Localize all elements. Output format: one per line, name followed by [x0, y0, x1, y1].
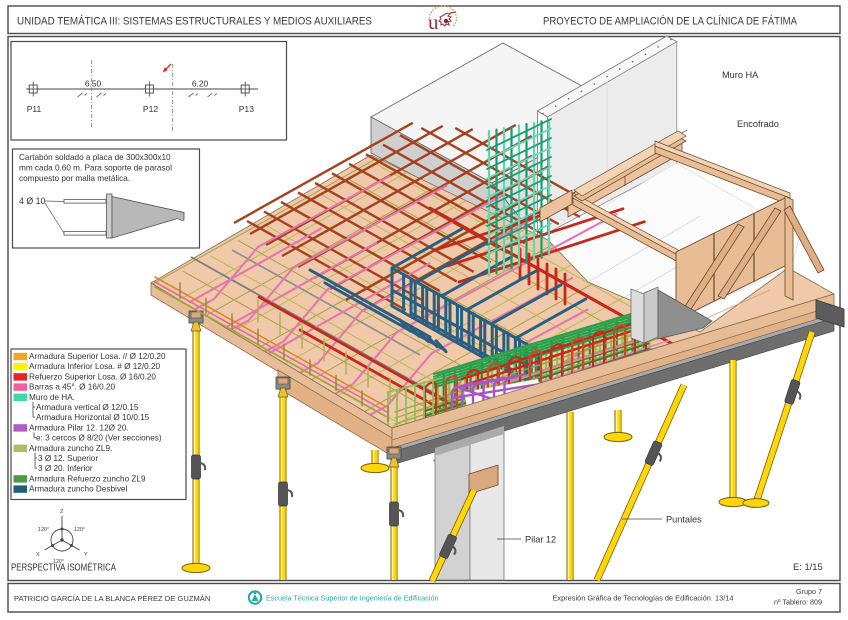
svg-text:120°: 120° — [38, 527, 49, 533]
svg-text:Armadura Inferior Losa. # Ø 1: Armadura Inferior Losa. # Ø 12/0.20 — [29, 362, 161, 371]
svg-text:3 Ø 20. Inferior: 3 Ø 20. Inferior — [38, 464, 93, 473]
svg-text:Puntales: Puntales — [666, 515, 702, 525]
svg-text:PROYECTO DE AMPLIACIÓN DE LA C: PROYECTO DE AMPLIACIÓN DE LA CLÍNICA DE … — [543, 15, 797, 28]
svg-text:Barras a 45°. Ø 16/0.20: Barras a 45°. Ø 16/0.20 — [29, 383, 116, 392]
svg-text:Armadura zuncho ZL9.: Armadura zuncho ZL9. — [29, 444, 112, 453]
svg-text:Cartabón soldado a placa de 30: Cartabón soldado a placa de 300x300x10 — [19, 153, 171, 162]
svg-text:u: u — [428, 10, 439, 34]
svg-text:Refuerzo Superior Losa. Ø 16/0: Refuerzo Superior Losa. Ø 16/0.20 — [29, 372, 156, 381]
svg-text:120°: 120° — [74, 527, 85, 533]
svg-text:Armadura Pilar 12. 12Ø 20.: Armadura Pilar 12. 12Ø 20. — [29, 423, 129, 432]
svg-text:nº Tablero: 809: nº Tablero: 809 — [774, 598, 822, 607]
svg-text:e: 3 cercos Ø 8/20 (Ver secci: e: 3 cercos Ø 8/20 (Ver secciones) — [36, 434, 162, 443]
svg-text:6.50: 6.50 — [85, 79, 102, 89]
svg-text:mm cada 0.60 m. Para soporte d: mm cada 0.60 m. Para soporte de parasol — [19, 164, 172, 173]
svg-text:Armadura Horizontal Ø 10/0.15: Armadura Horizontal Ø 10/0.15 — [36, 413, 150, 422]
svg-text:PATRICIO GARCÍA DE LA BLANCA P: PATRICIO GARCÍA DE LA BLANCA PÉREZ DE GU… — [14, 594, 210, 603]
svg-text:Muro de HA.: Muro de HA. — [29, 393, 75, 402]
svg-text:Armadura Superior Losa. // Ø: Armadura Superior Losa. // Ø 12/0.20 — [29, 352, 166, 361]
svg-text:Encofrado: Encofrado — [737, 119, 779, 129]
svg-text:Escuela Técnica Superior de In: Escuela Técnica Superior de Ingeniería d… — [266, 594, 438, 603]
svg-text:4 Ø 10: 4 Ø 10 — [19, 196, 46, 206]
svg-text:UNIDAD TEMÁTICA III: SISTEMAS: UNIDAD TEMÁTICA III: SISTEMAS ESTRUCTURA… — [17, 15, 372, 28]
svg-text:Muro HA: Muro HA — [722, 70, 759, 80]
svg-text:P13: P13 — [239, 104, 255, 114]
svg-text:Armadura vertical Ø 12/0.15: Armadura vertical Ø 12/0.15 — [36, 403, 139, 412]
svg-text:PERSPECTIVA ISOMÉTRICA: PERSPECTIVA ISOMÉTRICA — [11, 561, 116, 574]
svg-text:Expresión Gráfica de Tecnologí: Expresión Gráfica de Tecnologías de Edif… — [552, 594, 733, 603]
svg-text:Pilar 12: Pilar 12 — [525, 535, 556, 545]
svg-text:Armadura Refuerzo zuncho ZL9: Armadura Refuerzo zuncho ZL9 — [29, 474, 146, 483]
svg-text:P11: P11 — [27, 104, 42, 114]
svg-text:X: X — [36, 552, 40, 558]
svg-text:Grupo 7: Grupo 7 — [796, 587, 822, 596]
svg-text:E: 1/15: E: 1/15 — [793, 561, 823, 572]
svg-text:6.20: 6.20 — [192, 79, 209, 89]
svg-text:compuesto por malla metálica.: compuesto por malla metálica. — [19, 174, 130, 183]
svg-text:P12: P12 — [143, 104, 159, 114]
svg-text:Armadura zuncho Desbivel: Armadura zuncho Desbivel — [29, 485, 127, 494]
svg-text:3 Ø 12. Superior: 3 Ø 12. Superior — [38, 454, 98, 463]
svg-text:Y: Y — [84, 552, 88, 558]
